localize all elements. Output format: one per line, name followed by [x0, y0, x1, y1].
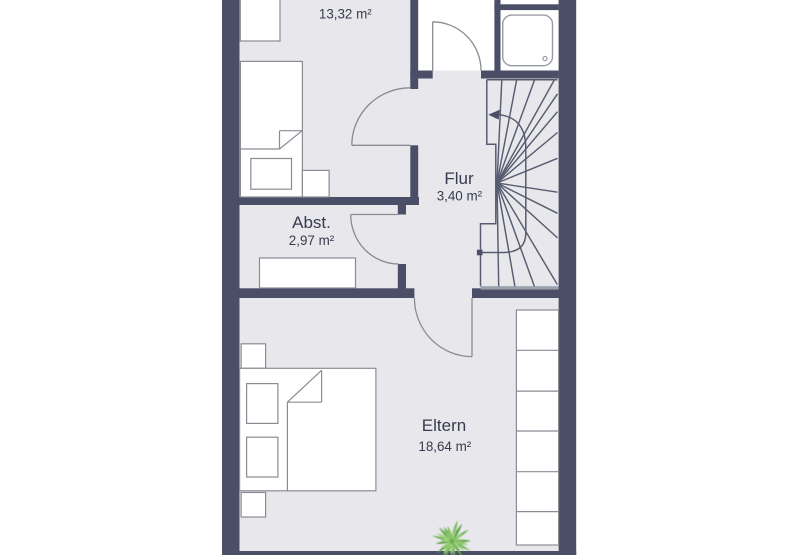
svg-text:Eltern: Eltern	[422, 416, 466, 435]
svg-text:3,40 m²: 3,40 m²	[437, 188, 483, 203]
svg-text:Abst.: Abst.	[292, 213, 331, 232]
svg-text:2,97 m²: 2,97 m²	[289, 233, 335, 248]
svg-text:13,32 m²: 13,32 m²	[319, 6, 372, 21]
svg-text:Flur: Flur	[444, 169, 474, 188]
svg-text:18,64 m²: 18,64 m²	[418, 439, 471, 454]
